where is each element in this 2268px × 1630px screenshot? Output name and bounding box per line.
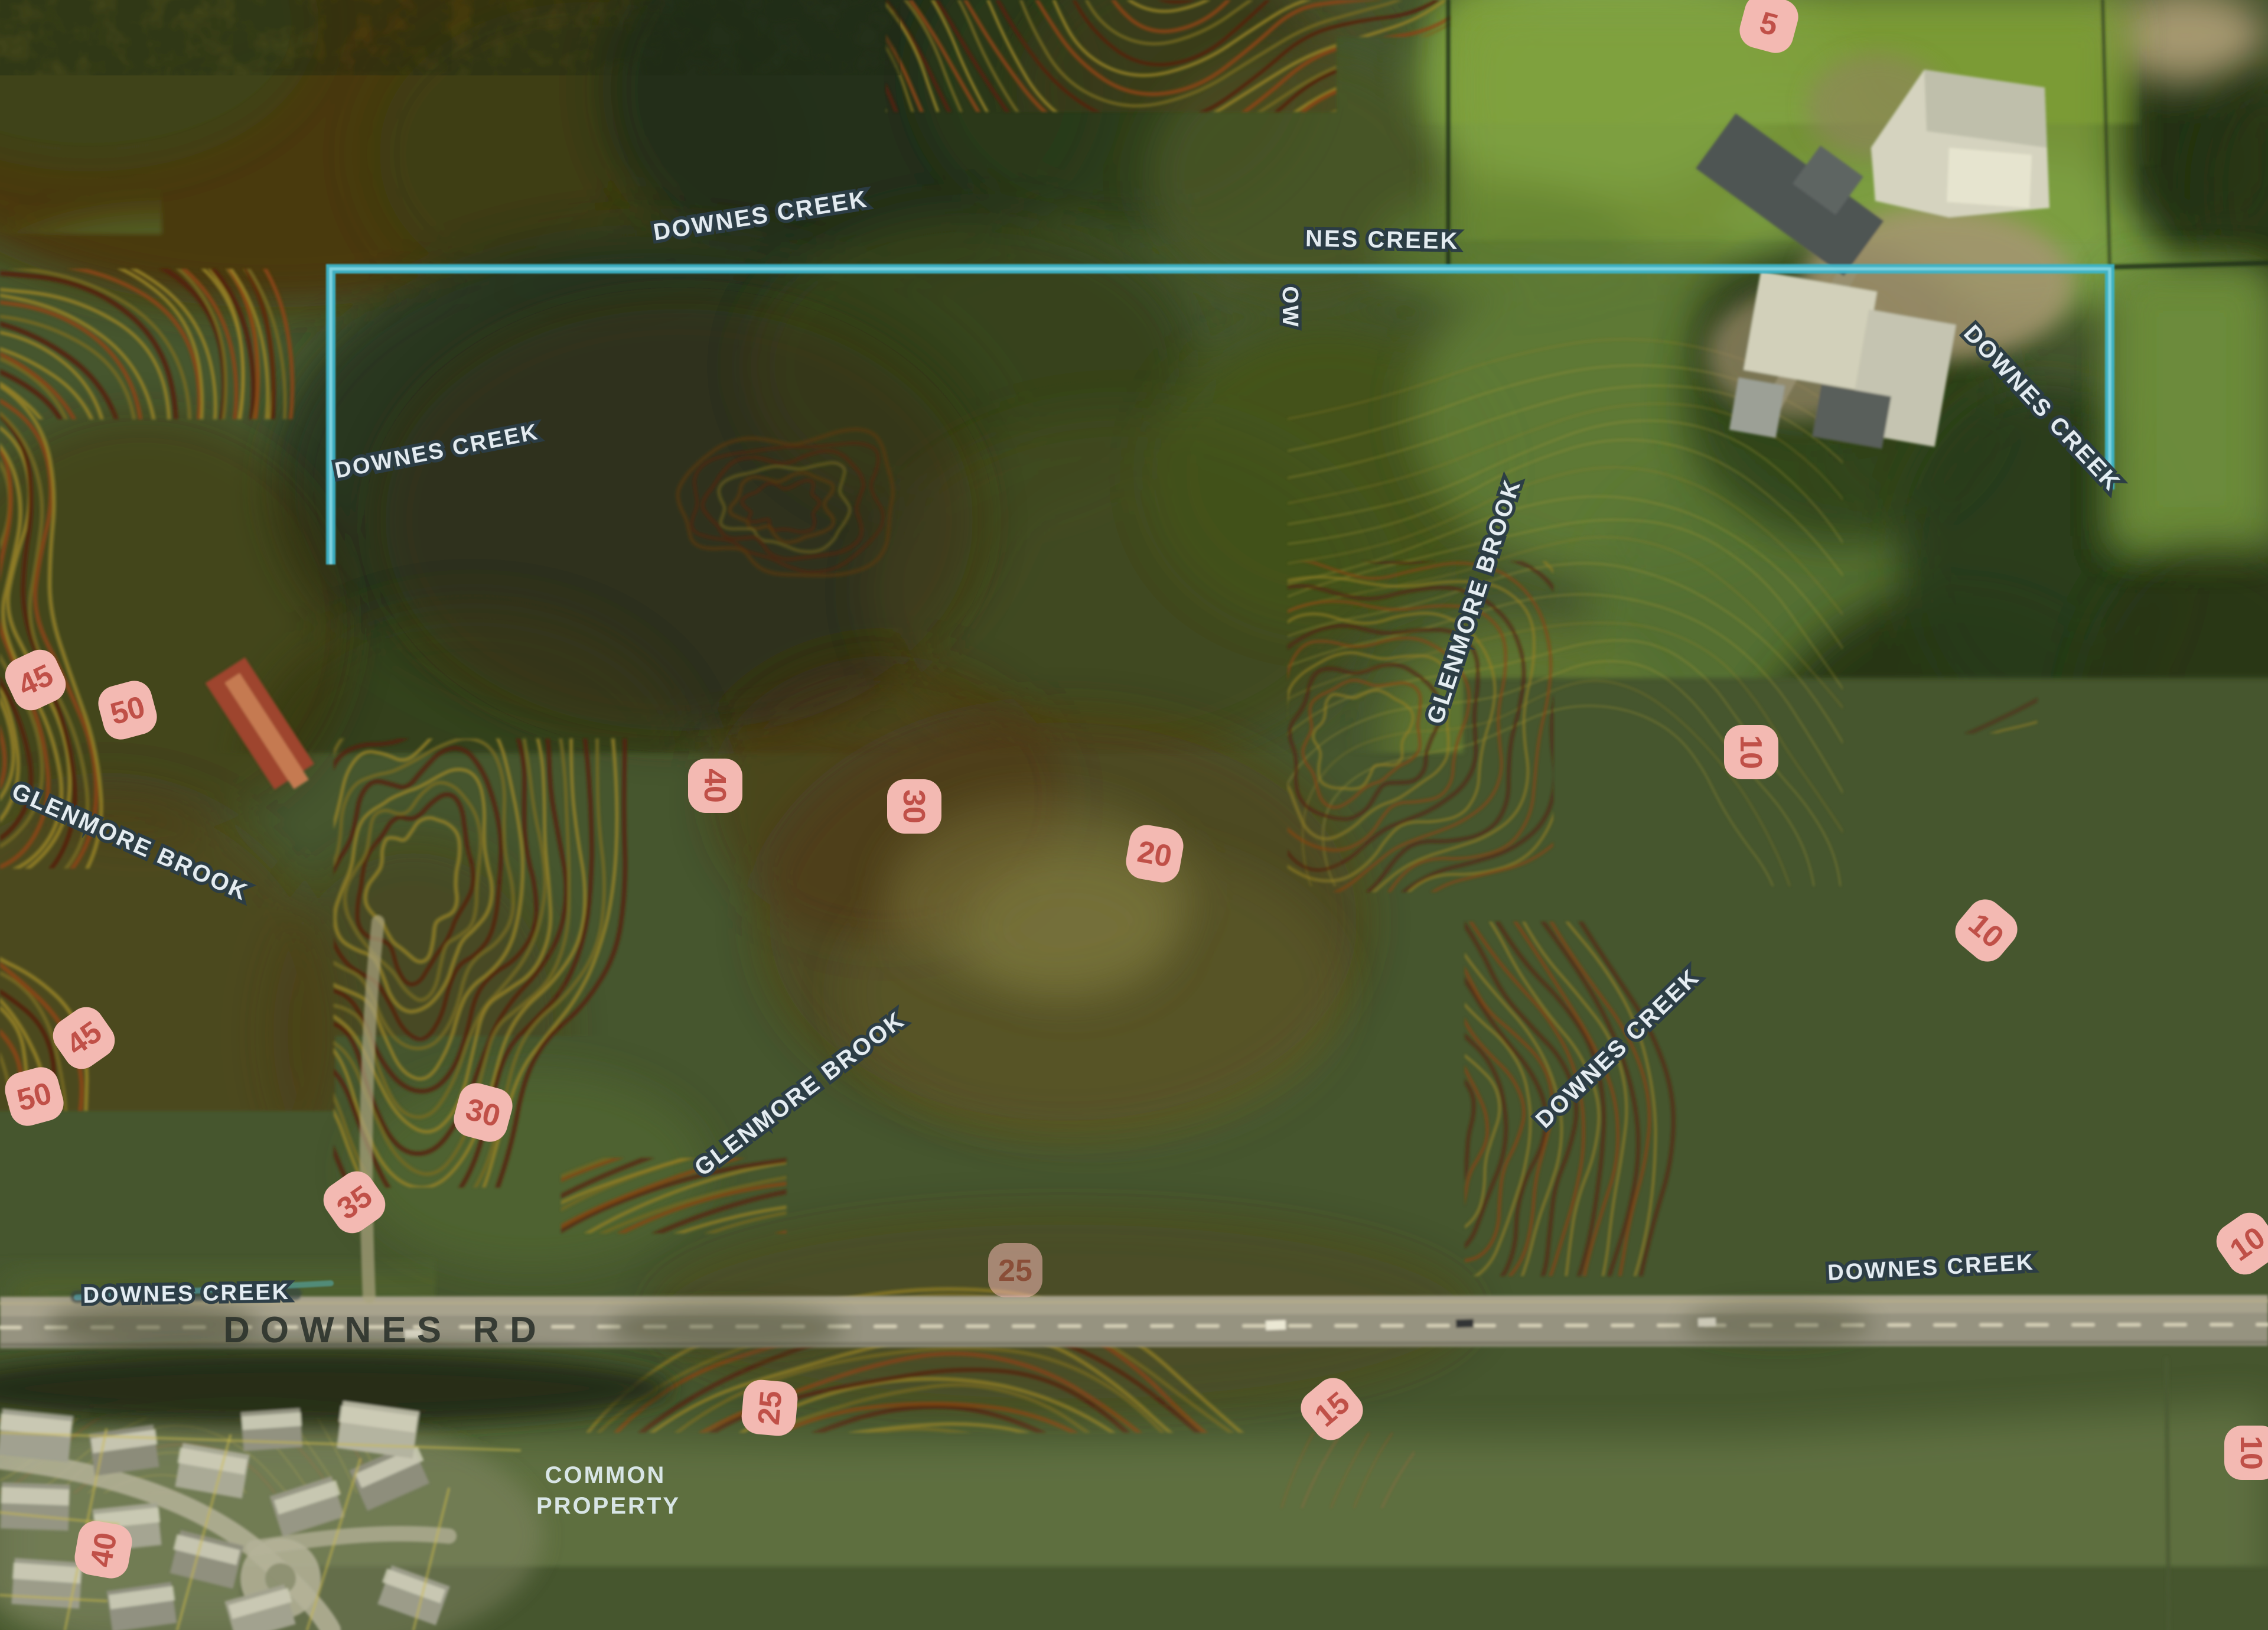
svg-text:NES CREEK: NES CREEK: [1305, 226, 1459, 255]
svg-text:40: 40: [698, 769, 732, 803]
svg-text:25: 25: [998, 1254, 1032, 1288]
svg-text:25: 25: [752, 1390, 789, 1427]
svg-text:20: 20: [1135, 834, 1174, 874]
svg-text:DOWNES CREEK: DOWNES CREEK: [83, 1280, 290, 1308]
svg-text:10: 10: [1733, 735, 1768, 769]
svg-text:PROPERTY: PROPERTY: [536, 1493, 680, 1519]
svg-text:COMMON: COMMON: [545, 1462, 666, 1488]
svg-text:10: 10: [2234, 1436, 2268, 1470]
svg-text:OW: OW: [1278, 286, 1302, 328]
svg-text:40: 40: [84, 1530, 123, 1570]
svg-text:30: 30: [897, 789, 931, 824]
svg-text:DOWNES RD: DOWNES RD: [223, 1310, 547, 1351]
